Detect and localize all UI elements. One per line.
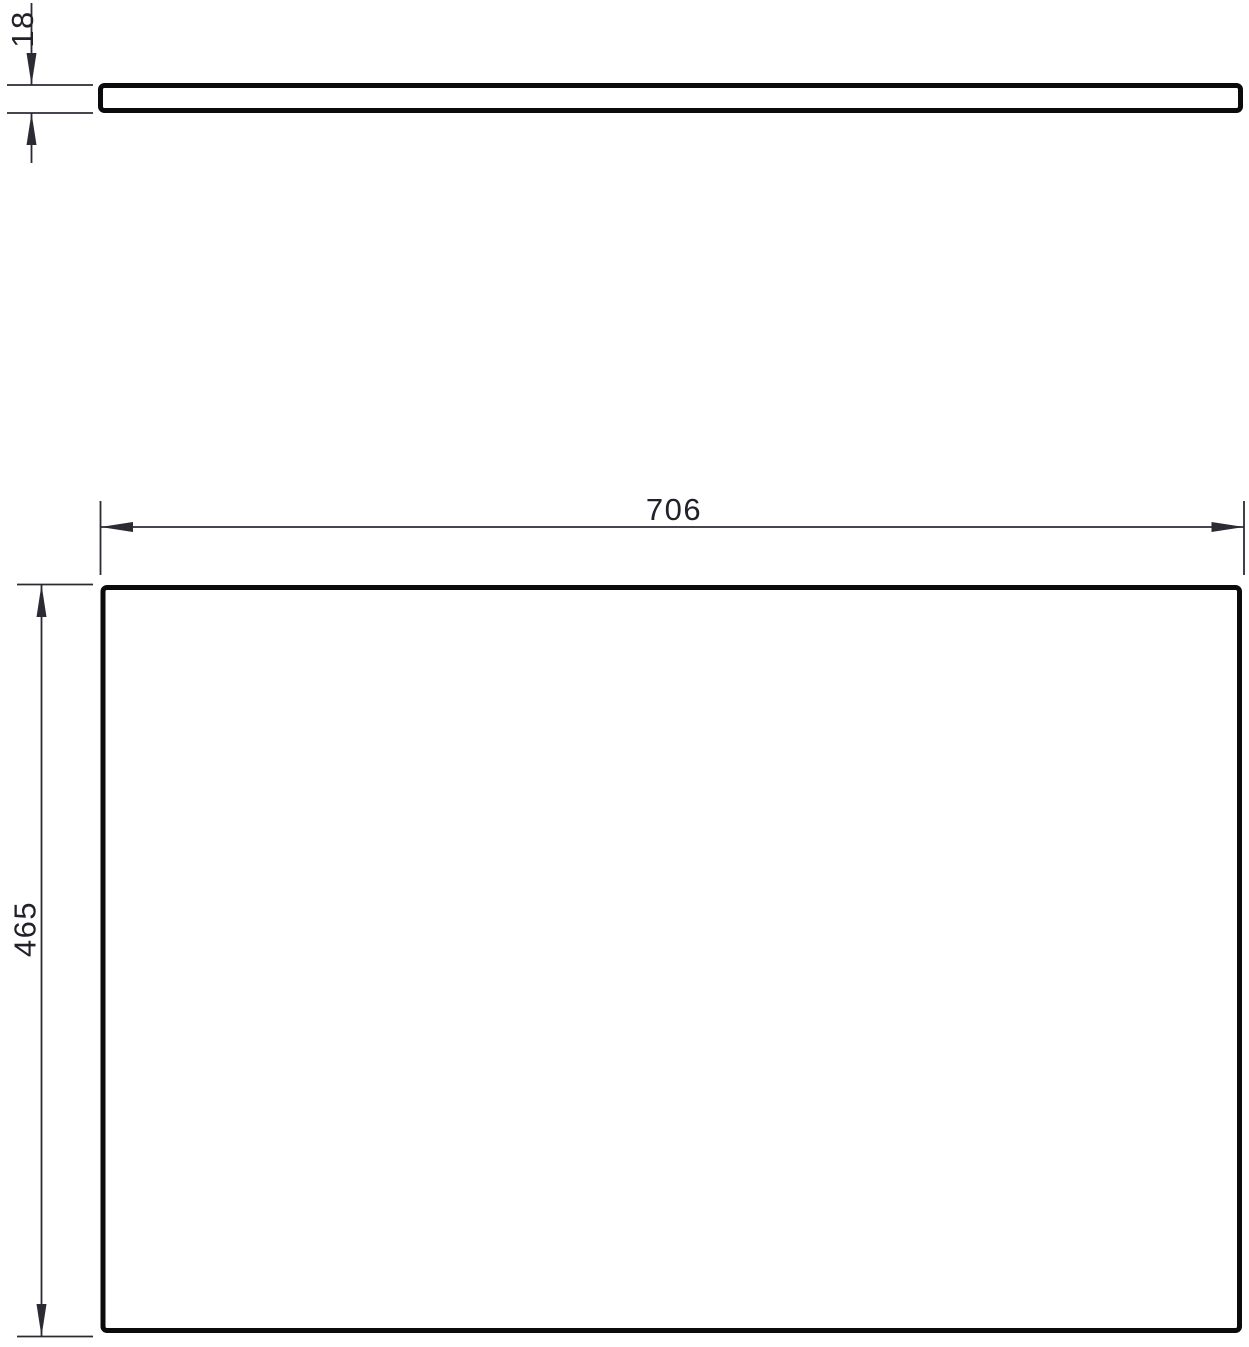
- panel-side-view-outline: [101, 86, 1241, 111]
- panel-top-view-outline: [103, 588, 1240, 1331]
- thickness-dimension-label: 18: [5, 10, 40, 47]
- height-dimension: 465: [8, 585, 94, 1337]
- width-dimension-label: 706: [646, 492, 702, 527]
- width-arrowhead-right: [1212, 522, 1245, 532]
- thickness-dimension: 18: [5, 3, 93, 163]
- height-arrowhead-up: [37, 585, 47, 618]
- width-dimension: 706: [101, 492, 1245, 575]
- thickness-arrowhead-down: [27, 53, 37, 85]
- width-arrowhead-left: [101, 522, 134, 532]
- technical-drawing: 18 706 465: [0, 0, 1249, 1347]
- height-dimension-label: 465: [8, 901, 43, 957]
- thickness-arrowhead-up: [27, 113, 37, 145]
- height-arrowhead-down: [37, 1304, 47, 1337]
- drawing-canvas: 18 706 465: [0, 0, 1249, 1347]
